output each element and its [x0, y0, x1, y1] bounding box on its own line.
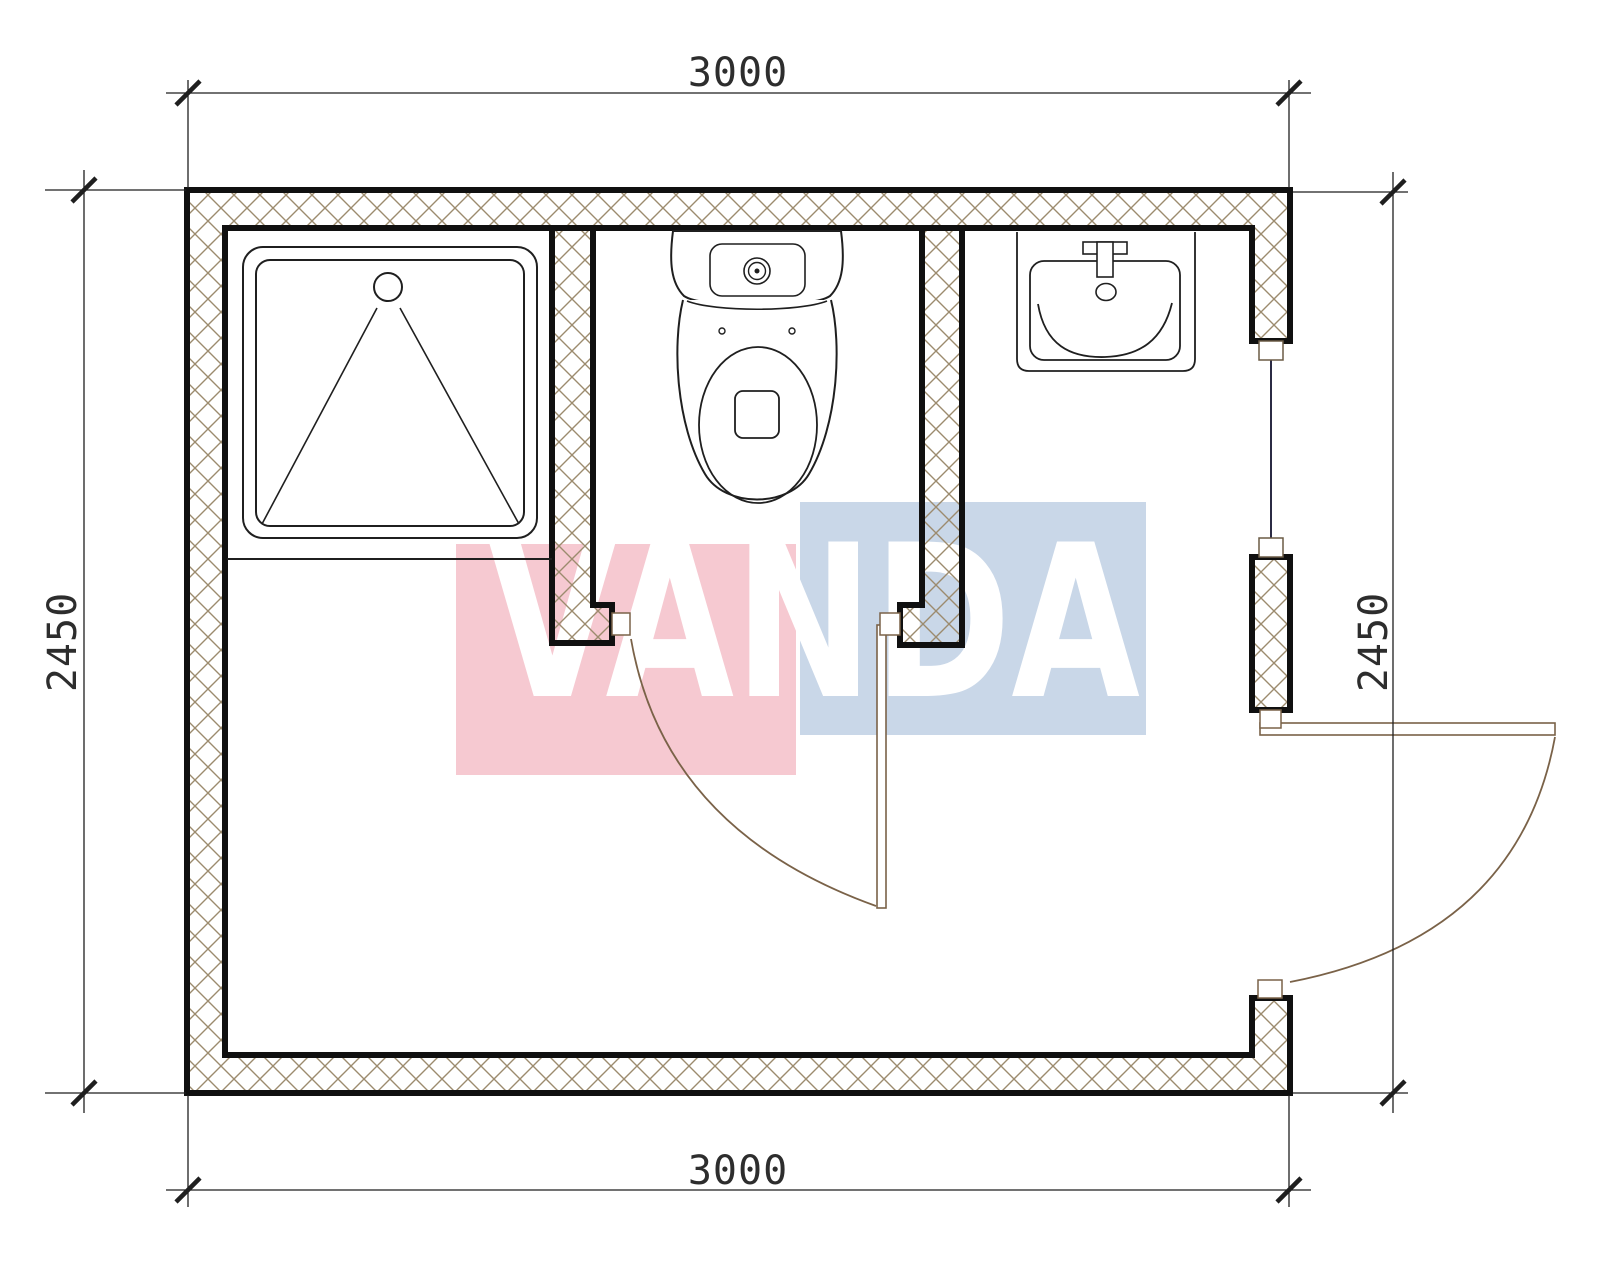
shower: [227, 247, 552, 559]
sink: [1017, 232, 1195, 371]
dimension-label-right: 2450: [1351, 592, 1397, 692]
dimension-label-bottom: 3000: [688, 1148, 788, 1194]
entry-door: [1258, 710, 1555, 998]
entry-door-strike-box: [1258, 980, 1282, 998]
faucet-spout: [1097, 242, 1113, 277]
dimension-label-left: 2450: [40, 592, 86, 692]
stall-door-jamb-box: [612, 613, 630, 635]
stall-door-leaf: [877, 625, 886, 908]
floor-plan-page: VANDA: [0, 0, 1600, 1280]
entry-door-swing-arc: [1290, 737, 1555, 982]
toilet: [671, 231, 843, 503]
window-frame-box-bottom: [1259, 538, 1283, 557]
dimension-label-top: 3000: [688, 50, 788, 96]
entry-door-leaf: [1260, 723, 1555, 735]
dimension-top: [166, 80, 1311, 188]
window: [1259, 341, 1283, 557]
toilet-flush-button-dot: [755, 269, 760, 274]
right-wall-pier: [1252, 557, 1290, 710]
floor-plan-canvas: VANDA: [0, 0, 1600, 1280]
entry-door-hinge-box: [1260, 710, 1281, 728]
stall-door-hinge-box: [880, 613, 900, 635]
toilet-tank: [671, 231, 843, 302]
window-frame-box-top: [1259, 341, 1283, 360]
shower-tray-outer: [243, 247, 537, 538]
